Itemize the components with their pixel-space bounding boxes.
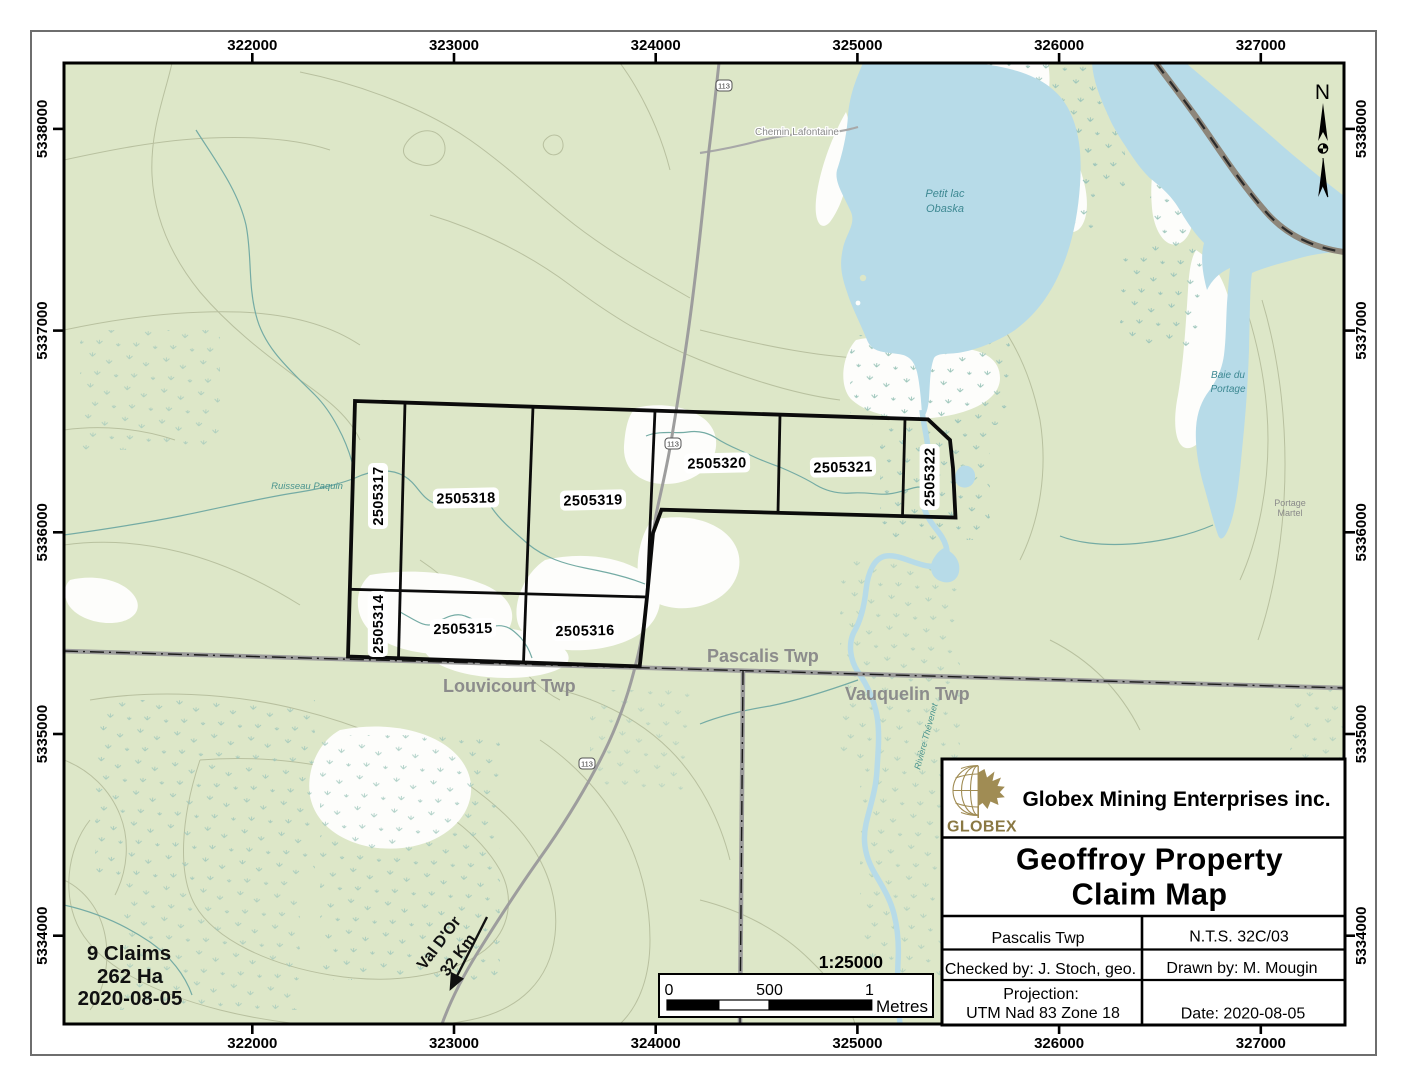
svg-text:5335000: 5335000	[1353, 705, 1370, 763]
svg-text:Drawn by: M. Mougin: Drawn by: M. Mougin	[1166, 960, 1317, 977]
svg-text:Chemin Lafontaine: Chemin Lafontaine	[755, 127, 839, 138]
svg-text:5336000: 5336000	[1353, 503, 1370, 561]
svg-text:2505316: 2505316	[555, 623, 615, 640]
svg-text:Pascalis Twp: Pascalis Twp	[707, 646, 819, 666]
svg-text:1:25000: 1:25000	[819, 952, 883, 972]
svg-text:5335000: 5335000	[34, 705, 51, 763]
svg-text:Geoffroy Property: Geoffroy Property	[1016, 843, 1283, 877]
svg-text:327000: 327000	[1236, 1035, 1286, 1052]
svg-text:UTM Nad 83 Zone 18: UTM Nad 83 Zone 18	[966, 1005, 1120, 1022]
svg-text:Metres: Metres	[876, 997, 928, 1016]
svg-text:5338000: 5338000	[34, 100, 51, 158]
svg-text:GLOBEX: GLOBEX	[947, 819, 1017, 836]
svg-text:Claim Map: Claim Map	[1072, 878, 1228, 912]
svg-text:Martel: Martel	[1277, 508, 1302, 518]
svg-text:323000: 323000	[429, 1035, 479, 1052]
svg-text:500: 500	[756, 982, 783, 999]
svg-text:324000: 324000	[631, 37, 681, 54]
svg-text:Date: 2020-08-05: Date: 2020-08-05	[1181, 1006, 1306, 1023]
svg-text:327000: 327000	[1236, 37, 1286, 54]
svg-text:Portage: Portage	[1210, 384, 1245, 395]
svg-text:5336000: 5336000	[34, 503, 51, 561]
svg-text:325000: 325000	[832, 37, 882, 54]
svg-text:Checked by: J. Stoch, geo.: Checked by: J. Stoch, geo.	[945, 961, 1136, 978]
svg-text:2505315: 2505315	[433, 621, 493, 638]
svg-text:113: 113	[581, 760, 593, 769]
svg-text:Globex Mining Enterprises inc.: Globex Mining Enterprises inc.	[1022, 788, 1330, 811]
svg-text:5338000: 5338000	[1353, 100, 1370, 158]
svg-text:2505322: 2505322	[923, 447, 939, 506]
svg-text:2505321: 2505321	[813, 459, 873, 476]
svg-text:5334000: 5334000	[34, 906, 51, 964]
svg-text:Louvicourt Twp: Louvicourt Twp	[443, 676, 576, 696]
svg-text:324000: 324000	[631, 1035, 681, 1052]
svg-text:113: 113	[718, 82, 730, 91]
svg-text:Ruisseau Paquin: Ruisseau Paquin	[271, 481, 343, 492]
svg-text:322000: 322000	[227, 37, 277, 54]
svg-text:2505317: 2505317	[371, 466, 387, 525]
svg-text:9 Claims: 9 Claims	[87, 942, 171, 965]
svg-text:5334000: 5334000	[1353, 906, 1370, 964]
svg-text:Vauquelin Twp: Vauquelin Twp	[845, 684, 970, 704]
svg-text:113: 113	[667, 440, 679, 449]
svg-text:2505320: 2505320	[687, 455, 747, 472]
svg-text:325000: 325000	[832, 1035, 882, 1052]
svg-text:262 Ha: 262 Ha	[97, 965, 164, 988]
svg-text:Projection:: Projection:	[1003, 986, 1079, 1003]
svg-text:1: 1	[865, 982, 874, 999]
svg-text:323000: 323000	[429, 37, 479, 54]
svg-text:2505318: 2505318	[436, 490, 496, 507]
svg-text:N.T.S. 32C/03: N.T.S. 32C/03	[1189, 929, 1289, 946]
svg-text:Baie du: Baie du	[1211, 370, 1245, 381]
svg-text:326000: 326000	[1034, 37, 1084, 54]
svg-text:Pascalis Twp: Pascalis Twp	[991, 930, 1084, 947]
svg-text:N: N	[1315, 81, 1330, 104]
svg-text:Petit lac: Petit lac	[925, 188, 965, 200]
svg-text:326000: 326000	[1034, 1035, 1084, 1052]
svg-text:Portage: Portage	[1274, 498, 1306, 508]
svg-text:2505319: 2505319	[563, 492, 623, 509]
svg-text:2505314: 2505314	[371, 594, 387, 653]
svg-text:5337000: 5337000	[34, 301, 51, 359]
svg-text:Obaska: Obaska	[926, 203, 964, 215]
svg-text:5337000: 5337000	[1353, 301, 1370, 359]
svg-text:0: 0	[665, 982, 674, 999]
svg-text:322000: 322000	[227, 1035, 277, 1052]
svg-text:2020-08-05: 2020-08-05	[78, 987, 183, 1010]
